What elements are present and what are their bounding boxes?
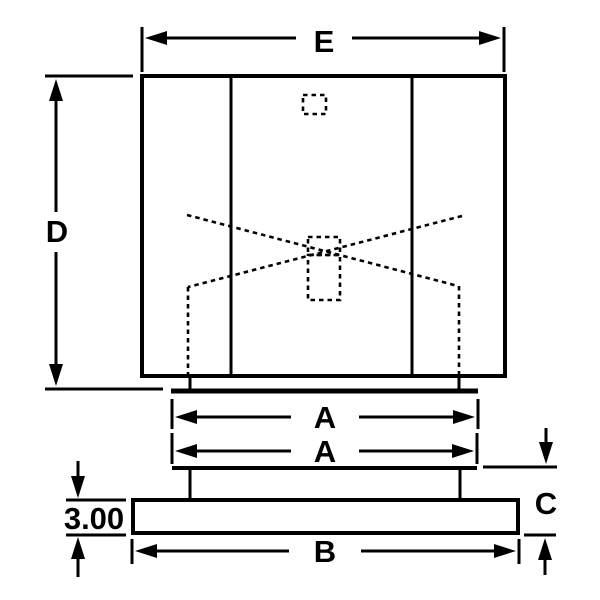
- base-plate-outline: [133, 500, 518, 533]
- dimension-drawing-canvas: E D A A B: [0, 0, 600, 600]
- hidden-cross-line-1: [187, 215, 458, 286]
- dimension-drawing: E D A A B: [0, 0, 600, 600]
- main-body: [142, 76, 505, 376]
- hidden-center-box-lower: [308, 255, 340, 300]
- dim-d-arrowhead-up: [49, 79, 63, 101]
- dim-300-label: 3.00: [64, 501, 124, 536]
- dim-d-label: D: [46, 214, 68, 249]
- dimension-A-upper: A: [172, 399, 478, 435]
- main-body-outline: [142, 76, 505, 376]
- flange: [171, 376, 478, 391]
- dim-a1-label: A: [314, 400, 336, 435]
- dim-a1-arrowhead-right: [453, 410, 475, 424]
- dim-a2-arrowhead-left: [175, 444, 197, 458]
- dim-e-label: E: [314, 24, 335, 59]
- hidden-center-box-upper: [308, 237, 340, 255]
- dim-e-arrowhead-left: [145, 31, 167, 45]
- dim-300-arrowhead-up: [71, 537, 85, 559]
- dim-b-arrowhead-left: [135, 544, 157, 558]
- dimension-A-lower: A: [172, 433, 477, 469]
- dimension-E: E: [142, 24, 504, 72]
- dim-b-arrowhead-right: [494, 544, 516, 558]
- dim-c-arrowhead-down: [539, 442, 553, 464]
- dim-c-arrowhead-up: [538, 538, 552, 560]
- dim-a2-arrowhead-right: [452, 444, 474, 458]
- dim-e-arrowhead-right: [479, 31, 501, 45]
- dim-c-label: C: [535, 486, 557, 521]
- dim-a1-arrowhead-left: [175, 410, 197, 424]
- dimension-B: B: [132, 534, 519, 569]
- base-plate: [133, 500, 518, 533]
- dim-b-label: B: [314, 534, 336, 569]
- dim-a2-label: A: [314, 434, 336, 469]
- hidden-features: [187, 95, 462, 376]
- hidden-top-cutout: [303, 95, 326, 114]
- dimension-base-thickness: 3.00: [64, 461, 126, 577]
- dimension-D: D: [45, 76, 163, 389]
- dim-d-arrowhead-down: [49, 364, 63, 386]
- mounting-plate: [172, 468, 477, 500]
- dim-300-arrowhead-down: [71, 476, 85, 498]
